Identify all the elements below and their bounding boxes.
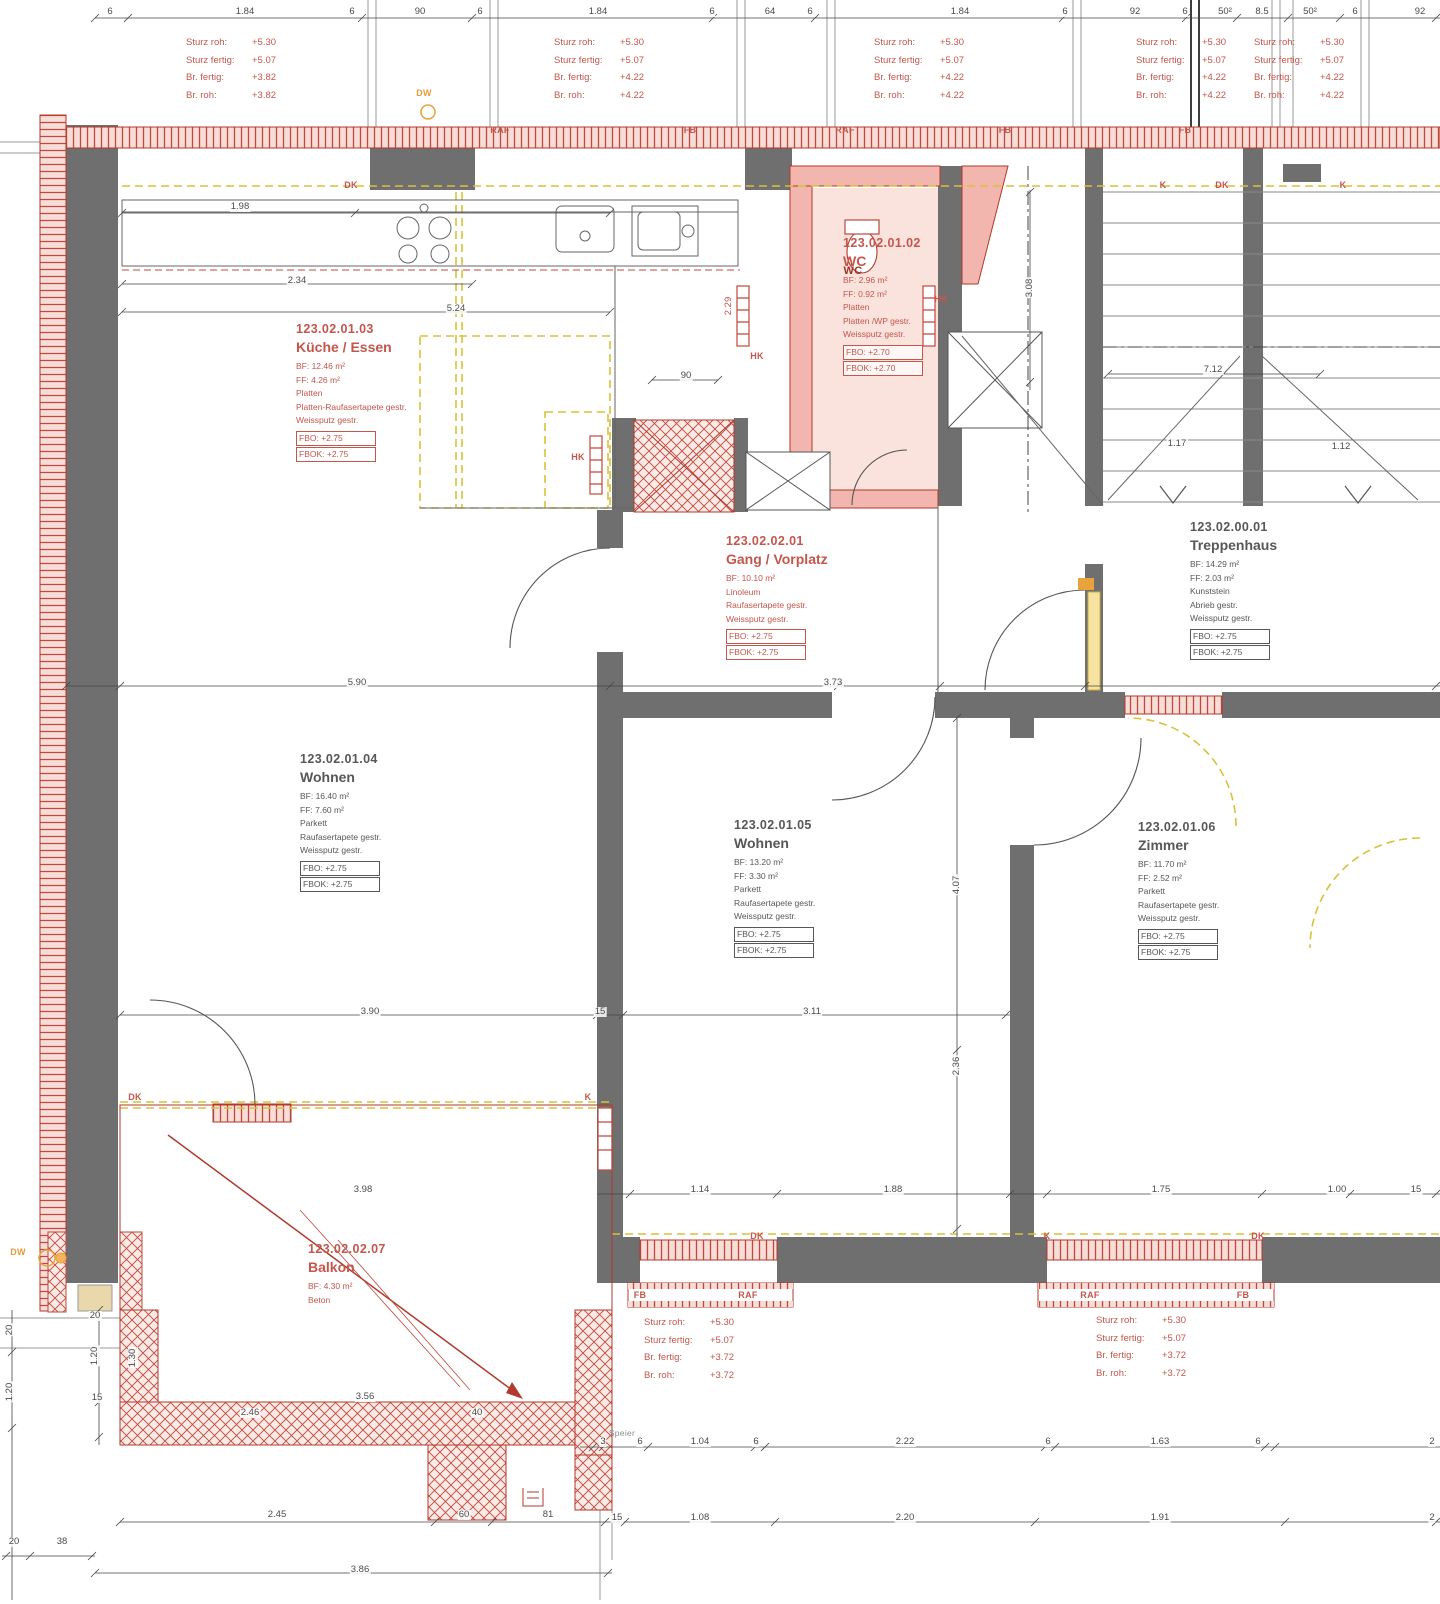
dimension-label: 6 — [476, 7, 483, 17]
lintel-note-row: Sturz fertig:+5.07 — [186, 52, 276, 70]
dimension-label: 1.20 — [5, 1382, 15, 1403]
room-info-line: Raufasertapete gestr. — [1138, 899, 1219, 913]
room-info-line: BF: 11.70 m² — [1138, 858, 1219, 872]
dimension-label: 1.63 — [1150, 1437, 1171, 1447]
room-name: Zimmer — [1138, 837, 1219, 853]
note-key: Sturz fertig: — [186, 52, 252, 70]
lintel-note-block: Sturz roh:+5.30Sturz fertig:+5.07Br. fer… — [874, 34, 964, 104]
note-value: +5.30 — [1202, 37, 1226, 48]
room-info-line: Parkett — [734, 883, 815, 897]
note-key: Br. fertig: — [644, 1349, 710, 1367]
dimension-label: 3.86 — [350, 1565, 371, 1575]
ceiling-level-box: FBOK: +2.75 — [300, 877, 380, 892]
room-label: 123.02.00.01TreppenhausBF: 14.29 m²FF: 2… — [1190, 520, 1277, 660]
room-number: 123.02.02.07 — [308, 1242, 386, 1256]
floorplan-page: Sturz roh:+5.30Sturz fertig:+5.07Br. fer… — [0, 0, 1440, 1604]
lintel-note-row: Br. roh:+3.82 — [186, 87, 276, 105]
ceiling-level-box: FBOK: +2.70 — [843, 361, 923, 376]
annotation-fb: FB — [1237, 1290, 1250, 1300]
annotation-raf: RAF — [835, 125, 854, 135]
dimension-label: 1.20 — [90, 1346, 100, 1367]
lintel-note-row: Sturz roh:+5.30 — [1254, 34, 1344, 52]
note-key: Sturz fertig: — [1136, 52, 1202, 70]
lintel-note-row: Br. fertig:+3.72 — [1096, 1347, 1186, 1365]
room-info-line: FF: 2.52 m² — [1138, 872, 1219, 886]
note-value: +3.82 — [252, 72, 276, 83]
note-key: Br. fertig: — [874, 69, 940, 87]
lintel-note-row: Sturz roh:+5.30 — [554, 34, 644, 52]
annotation-hk: HK — [571, 452, 585, 462]
ceiling-level-box: FBOK: +2.75 — [1190, 645, 1270, 660]
annotation-speier: Speier — [609, 1428, 635, 1438]
dimension-label: 3.90 — [360, 1007, 381, 1017]
note-key: Sturz fertig: — [644, 1332, 710, 1350]
dimension-label: 2.34 — [287, 276, 308, 286]
room-info-line: FF: 7.60 m² — [300, 804, 381, 818]
note-key: Sturz fertig: — [874, 52, 940, 70]
room-label: 123.02.01.06ZimmerBF: 11.70 m²FF: 2.52 m… — [1138, 820, 1219, 960]
room-info-line: BF: 12.46 m² — [296, 360, 407, 374]
dimension-label: 2 — [1428, 1513, 1435, 1523]
note-value: +4.22 — [940, 90, 964, 101]
floor-level-box: FBO: +2.75 — [726, 629, 806, 644]
dimension-label: 6 — [106, 7, 113, 17]
dimension-label: 6 — [636, 1437, 643, 1447]
annotation-fb: FB — [634, 1290, 647, 1300]
annotation-fb: FB — [1179, 125, 1192, 135]
note-value: +5.07 — [1320, 55, 1344, 66]
room-info-line: BF: 4.30 m² — [308, 1280, 386, 1294]
dimension-label: 1.84 — [588, 7, 609, 17]
note-key: Sturz roh: — [1136, 34, 1202, 52]
note-value: +4.22 — [1320, 72, 1344, 83]
room-label: 123.02.01.05WohnenBF: 13.20 m²FF: 3.30 m… — [734, 818, 815, 958]
lintel-note-block: Sturz roh:+5.30Sturz fertig:+5.07Br. fer… — [644, 1314, 734, 1384]
room-info-line: Kunststein — [1190, 585, 1277, 599]
dimension-label: 1.17 — [1167, 439, 1188, 449]
room-number: 123.02.01.06 — [1138, 820, 1219, 834]
dimension-label: 2.22 — [895, 1437, 916, 1447]
annotation-dw: DW — [10, 1247, 26, 1257]
annotation-fb: FB — [684, 125, 697, 135]
note-key: Sturz fertig: — [1096, 1330, 1162, 1348]
dimension-label: 2 — [1428, 1437, 1435, 1447]
note-value: +3.72 — [710, 1352, 734, 1363]
note-value: +3.82 — [252, 90, 276, 101]
dimension-label: 6 — [708, 7, 715, 17]
dimension-label: 1.00 — [1327, 1185, 1348, 1195]
annotation-layer: Sturz roh:+5.30Sturz fertig:+5.07Br. fer… — [0, 0, 1440, 1604]
room-info-line: Weissputz gestr. — [734, 910, 815, 924]
lintel-note-row: Sturz roh:+5.30 — [186, 34, 276, 52]
ceiling-level-box: FBOK: +2.75 — [1138, 945, 1218, 960]
room-name: Wohnen — [734, 835, 815, 851]
room-info-line: Abrieb gestr. — [1190, 599, 1277, 613]
dimension-label: 3.73 — [823, 678, 844, 688]
dimension-label: 1.88 — [883, 1185, 904, 1195]
dimension-label: 20 — [5, 1324, 15, 1337]
note-value: +5.07 — [1202, 55, 1226, 66]
room-info-line: Platten — [843, 301, 923, 315]
floor-level-box: FBO: +2.75 — [734, 927, 814, 942]
lintel-note-block: Sturz roh:+5.30Sturz fertig:+5.07Br. fer… — [186, 34, 276, 104]
annotation-dk: DK — [1215, 180, 1229, 190]
note-key: Br. roh: — [554, 87, 620, 105]
dimension-label: 1.84 — [235, 7, 256, 17]
room-label: 123.02.02.07BalkonBF: 4.30 m²Beton — [308, 1242, 386, 1307]
lintel-note-row: Br. roh:+3.72 — [644, 1367, 734, 1385]
dimension-label: 3.56 — [355, 1392, 376, 1402]
room-info-line: BF: 13.20 m² — [734, 856, 815, 870]
note-key: Sturz roh: — [644, 1314, 710, 1332]
note-value: +3.72 — [1162, 1368, 1186, 1379]
note-key: Sturz roh: — [186, 34, 252, 52]
room-info-line: FF: 4.26 m² — [296, 374, 407, 388]
lintel-note-row: Br. fertig:+4.22 — [554, 69, 644, 87]
annotation-hk: HK — [934, 294, 948, 304]
lintel-note-row: Br. fertig:+4.22 — [874, 69, 964, 87]
annotation-dk: DK — [128, 1092, 142, 1102]
room-info-line: Weissputz gestr. — [300, 844, 381, 858]
dimension-label: 3 — [599, 1437, 606, 1447]
lintel-note-block: Sturz roh:+5.30Sturz fertig:+5.07Br. fer… — [1096, 1312, 1186, 1382]
dimension-label: 6 — [348, 7, 355, 17]
dimension-label: 3.08 — [1025, 278, 1035, 299]
note-key: Br. fertig: — [1254, 69, 1320, 87]
note-key: Br. fertig: — [186, 69, 252, 87]
note-key: Br. roh: — [874, 87, 940, 105]
ceiling-level-box: FBOK: +2.75 — [296, 447, 376, 462]
lintel-note-row: Sturz roh:+5.30 — [874, 34, 964, 52]
dimension-label: 6 — [806, 7, 813, 17]
dimension-label: 6 — [1254, 1437, 1261, 1447]
dimension-label: 1.75 — [1151, 1185, 1172, 1195]
dimension-label: 1.30 — [128, 1348, 138, 1369]
room-info-line: FF: 3.30 m² — [734, 870, 815, 884]
dimension-label: 1.98 — [230, 202, 251, 212]
dimension-label: 2.36 — [952, 1056, 962, 1077]
dimension-label: 6 — [1061, 7, 1068, 17]
annotation-dw: DW — [416, 88, 432, 98]
room-label: 123.02.02.01Gang / VorplatzBF: 10.10 m²L… — [726, 534, 828, 660]
room-name: Gang / Vorplatz — [726, 551, 828, 567]
lintel-note-row: Br. fertig:+4.22 — [1254, 69, 1344, 87]
room-info-line: Weissputz gestr. — [843, 328, 923, 342]
lintel-note-row: Br. roh:+4.22 — [874, 87, 964, 105]
room-info-line: Weissputz gestr. — [726, 613, 828, 627]
room-info-line: Beton — [308, 1294, 386, 1308]
lintel-note-block: Sturz roh:+5.30Sturz fertig:+5.07Br. fer… — [554, 34, 644, 104]
room-number: 123.02.01.05 — [734, 818, 815, 832]
dimension-label: 6 — [1181, 7, 1188, 17]
dimension-label: 1.14 — [690, 1185, 711, 1195]
note-value: +5.30 — [1162, 1315, 1186, 1326]
dimension-label: 20 — [89, 1311, 102, 1321]
note-value: +5.30 — [620, 37, 644, 48]
room-info-line: Platten /WP gestr. — [843, 315, 923, 329]
dimension-label: 2.46 — [240, 1408, 261, 1418]
note-key: Sturz fertig: — [1254, 52, 1320, 70]
dimension-label: 90 — [680, 371, 693, 381]
lintel-note-row: Br. roh:+4.22 — [554, 87, 644, 105]
lintel-note-row: Sturz roh:+5.30 — [1096, 1312, 1186, 1330]
annotation-fb: FB — [999, 125, 1012, 135]
note-value: +5.30 — [940, 37, 964, 48]
room-info-line: BF: 16.40 m² — [300, 790, 381, 804]
annotation-k: K — [1044, 1231, 1051, 1241]
ceiling-level-box: FBOK: +2.75 — [726, 645, 806, 660]
dimension-label: 38 — [56, 1537, 69, 1547]
note-key: Sturz roh: — [1096, 1312, 1162, 1330]
room-info-line: Parkett — [1138, 885, 1219, 899]
room-info-line: Linoleum — [726, 586, 828, 600]
floor-level-box: FBO: +2.75 — [1190, 629, 1270, 644]
room-info-line: FF: 2.03 m² — [1190, 572, 1277, 586]
dimension-label: 1.91 — [1150, 1513, 1171, 1523]
note-value: +5.07 — [620, 55, 644, 66]
room-number: 123.02.01.03 — [296, 322, 407, 336]
note-key: Sturz roh: — [554, 34, 620, 52]
note-value: +5.30 — [252, 37, 276, 48]
note-value: +4.22 — [620, 90, 644, 101]
annotation-raf: RAF — [1080, 1290, 1099, 1300]
dimension-label: 15 — [594, 1007, 607, 1017]
room-info-line: BF: 14.29 m² — [1190, 558, 1277, 572]
floor-level-box: FBO: +2.70 — [843, 345, 923, 360]
room-info-line: FF: 0.92 m² — [843, 288, 923, 302]
lintel-note-row: Sturz fertig:+5.07 — [1136, 52, 1226, 70]
room-info-line: Weissputz gestr. — [1190, 612, 1277, 626]
lintel-note-row: Sturz fertig:+5.07 — [644, 1332, 734, 1350]
dimension-label: 5.90 — [347, 678, 368, 688]
room-info-line: Raufasertapete gestr. — [734, 897, 815, 911]
room-info-line: BF: 10.10 m² — [726, 572, 828, 586]
note-value: +5.07 — [710, 1335, 734, 1346]
annotation-k: K — [585, 1092, 592, 1102]
lintel-note-row: Sturz roh:+5.30 — [1136, 34, 1226, 52]
note-key: Br. roh: — [1096, 1365, 1162, 1383]
dimension-label: 6 — [1044, 1437, 1051, 1447]
room-label: 123.02.01.03Küche / EssenBF: 12.46 m²FF:… — [296, 322, 407, 462]
lintel-note-row: Br. roh:+3.72 — [1096, 1365, 1186, 1383]
dimension-label: 92 — [1129, 7, 1142, 17]
note-key: Br. roh: — [644, 1367, 710, 1385]
note-key: Sturz roh: — [874, 34, 940, 52]
note-key: Br. fertig: — [1096, 1347, 1162, 1365]
lintel-note-row: Sturz fertig:+5.07 — [1254, 52, 1344, 70]
room-number: 123.02.01.04 — [300, 752, 381, 766]
note-key: Br. fertig: — [554, 69, 620, 87]
dimension-label: 1.04 — [690, 1437, 711, 1447]
annotation-hk: HK — [750, 351, 764, 361]
dimension-label: 92 — [1414, 7, 1427, 17]
room-number: 123.02.00.01 — [1190, 520, 1277, 534]
annotation-raf: RAF — [738, 1290, 757, 1300]
lintel-note-row: Br. roh:+4.22 — [1254, 87, 1344, 105]
floor-level-box: FBO: +2.75 — [296, 431, 376, 446]
lintel-note-block: Sturz roh:+5.30Sturz fertig:+5.07Br. fer… — [1136, 34, 1226, 104]
note-key: Br. roh: — [186, 87, 252, 105]
dimension-label: 4.07 — [952, 875, 962, 896]
dimension-label: 15 — [611, 1513, 624, 1523]
room-number: 123.02.01.02 — [843, 236, 923, 250]
room-info-line: Parkett — [300, 817, 381, 831]
note-key: Br. roh: — [1254, 87, 1320, 105]
dimension-label: 1.08 — [690, 1513, 711, 1523]
lintel-note-row: Sturz roh:+5.30 — [644, 1314, 734, 1332]
lintel-note-row: Sturz fertig:+5.07 — [874, 52, 964, 70]
dimension-label: 3.11 — [802, 1007, 822, 1017]
dimension-label: 8.5 — [1254, 7, 1269, 17]
floor-level-box: FBO: +2.75 — [300, 861, 380, 876]
room-name: Treppenhaus — [1190, 537, 1277, 553]
note-value: +5.07 — [252, 55, 276, 66]
dimension-label: 15 — [91, 1393, 104, 1403]
note-value: +5.30 — [1320, 37, 1344, 48]
dimension-label: 90 — [414, 7, 427, 17]
note-value: +3.72 — [1162, 1350, 1186, 1361]
ceiling-level-box: FBOK: +2.75 — [734, 943, 814, 958]
annotation-raf: RAF — [490, 125, 509, 135]
room-info-line: Platten-Raufasertapete gestr. — [296, 401, 407, 415]
note-value: +5.07 — [940, 55, 964, 66]
note-value: +4.22 — [1320, 90, 1344, 101]
dimension-label: 2.29 — [724, 296, 734, 317]
note-key: Br. roh: — [1136, 87, 1202, 105]
dimension-label: 50² — [1302, 7, 1318, 17]
note-key: Sturz fertig: — [554, 52, 620, 70]
floor-level-box: FBO: +2.75 — [1138, 929, 1218, 944]
lintel-note-block: Sturz roh:+5.30Sturz fertig:+5.07Br. fer… — [1254, 34, 1344, 104]
note-value: +5.30 — [710, 1317, 734, 1328]
note-value: +4.22 — [1202, 72, 1226, 83]
dimension-label: 3.98 — [353, 1185, 374, 1195]
dimension-label: 1.12 — [1331, 442, 1352, 452]
dimension-label: 6 — [1351, 7, 1358, 17]
dimension-label: 1.84 — [950, 7, 971, 17]
dimension-label: 2.45 — [267, 1510, 288, 1520]
room-label: 123.02.01.04WohnenBF: 16.40 m²FF: 7.60 m… — [300, 752, 381, 892]
dimension-label: 64 — [764, 7, 777, 17]
note-key: Br. fertig: — [1136, 69, 1202, 87]
note-value: +5.07 — [1162, 1333, 1186, 1344]
room-name: Küche / Essen — [296, 339, 407, 355]
annotation-k: K — [1160, 180, 1167, 190]
lintel-note-row: Br. fertig:+3.72 — [644, 1349, 734, 1367]
room-info-line: Platten — [296, 387, 407, 401]
note-value: +4.22 — [1202, 90, 1226, 101]
lintel-note-row: Br. fertig:+4.22 — [1136, 69, 1226, 87]
dimension-label: 20 — [8, 1537, 21, 1547]
lintel-note-row: Br. fertig:+3.82 — [186, 69, 276, 87]
dimension-label: 60 — [458, 1510, 471, 1520]
lintel-note-row: Br. roh:+4.22 — [1136, 87, 1226, 105]
dimension-label: 81 — [542, 1510, 555, 1520]
annotation-dk: DK — [344, 180, 358, 190]
dimension-label: 6 — [752, 1437, 759, 1447]
dimension-label: 7.12 — [1203, 365, 1224, 375]
room-info-line: Raufasertapete gestr. — [726, 599, 828, 613]
dimension-label: 50² — [1217, 7, 1233, 17]
dimension-label: 5.24 — [446, 304, 467, 314]
room-label: 123.02.01.02WCBF: 2.96 m²FF: 0.92 m²Plat… — [843, 236, 923, 376]
note-key: Sturz roh: — [1254, 34, 1320, 52]
room-name: Balkon — [308, 1259, 386, 1275]
dimension-label: 2.20 — [895, 1513, 916, 1523]
lintel-note-row: Sturz fertig:+5.07 — [554, 52, 644, 70]
annotation-dk: DK — [750, 1231, 764, 1241]
room-number: 123.02.02.01 — [726, 534, 828, 548]
lintel-note-row: Sturz fertig:+5.07 — [1096, 1330, 1186, 1348]
note-value: +4.22 — [620, 72, 644, 83]
annotation-wc: WC — [844, 265, 863, 277]
dimension-label: 15 — [1410, 1185, 1423, 1195]
annotation-k: K — [1340, 180, 1347, 190]
annotation-dk: DK — [1251, 1231, 1265, 1241]
room-info-line: Weissputz gestr. — [296, 414, 407, 428]
room-info-line: Weissputz gestr. — [1138, 912, 1219, 926]
room-name: Wohnen — [300, 769, 381, 785]
room-info-line: Raufasertapete gestr. — [300, 831, 381, 845]
dimension-label: 40 — [471, 1408, 484, 1418]
note-value: +3.72 — [710, 1370, 734, 1381]
note-value: +4.22 — [940, 72, 964, 83]
